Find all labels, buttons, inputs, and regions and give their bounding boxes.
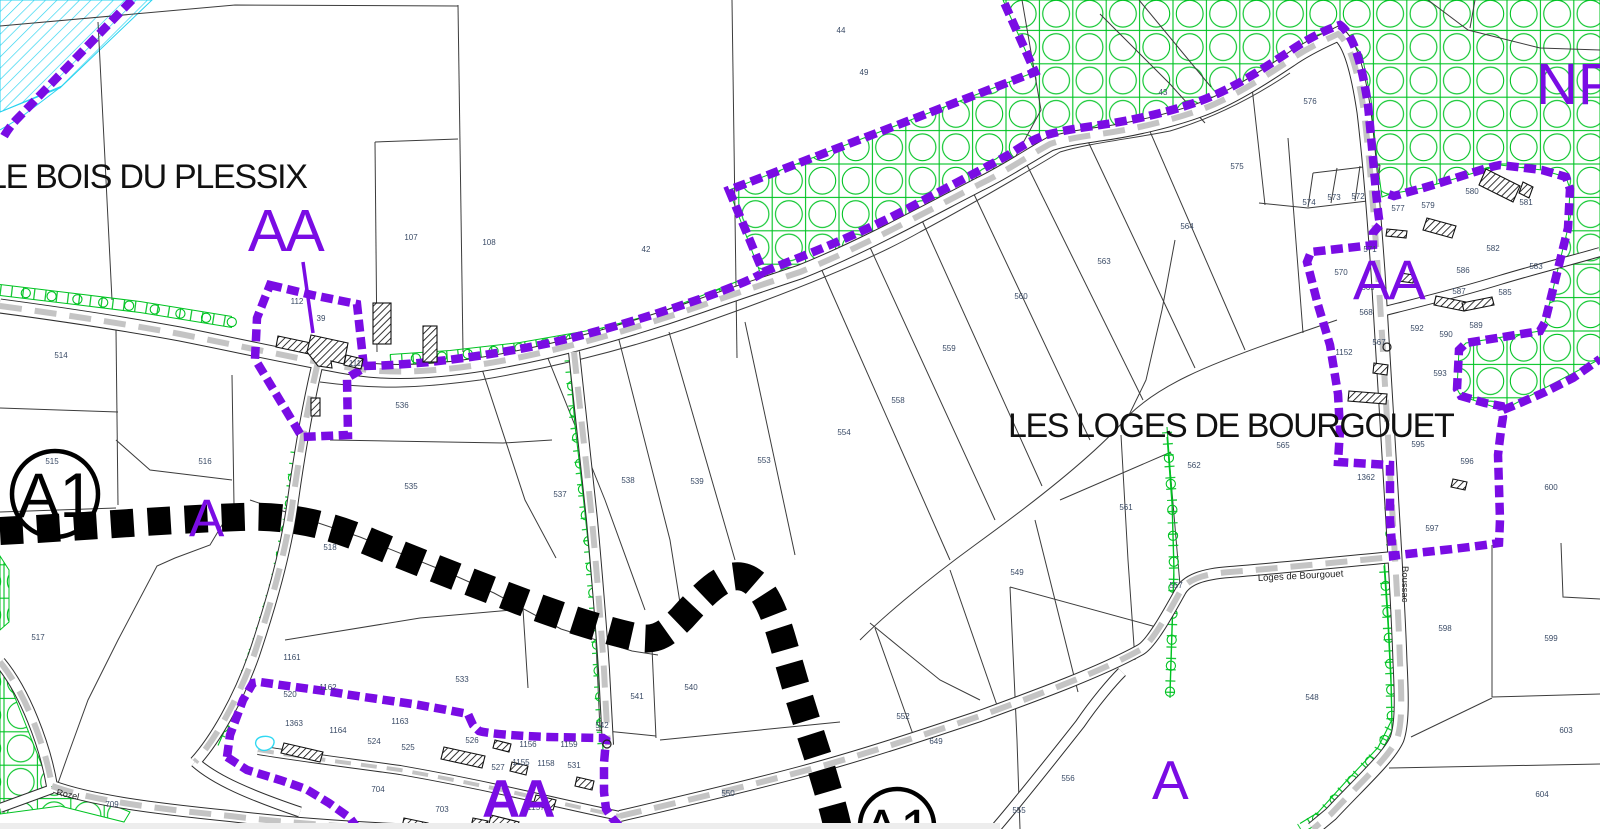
svg-text:649: 649 — [929, 737, 943, 746]
svg-text:559: 559 — [942, 344, 956, 353]
svg-text:575: 575 — [1230, 162, 1244, 171]
svg-text:A1: A1 — [17, 461, 94, 531]
svg-text:1159: 1159 — [560, 740, 578, 749]
svg-text:597: 597 — [1425, 524, 1439, 533]
svg-text:AA: AA — [1353, 248, 1426, 311]
svg-text:LE BOIS DU PLESSIX: LE BOIS DU PLESSIX — [0, 158, 307, 196]
svg-text:582: 582 — [1486, 244, 1500, 253]
svg-text:NP: NP — [1536, 52, 1600, 117]
svg-text:564: 564 — [1180, 222, 1194, 231]
svg-text:585: 585 — [1498, 288, 1512, 297]
svg-text:558: 558 — [891, 396, 905, 405]
svg-text:562: 562 — [1187, 461, 1201, 470]
svg-text:554: 554 — [837, 428, 851, 437]
svg-text:520: 520 — [283, 690, 297, 699]
svg-text:600: 600 — [1544, 483, 1558, 492]
svg-text:574: 574 — [1302, 198, 1316, 207]
svg-text:108: 108 — [482, 238, 496, 247]
svg-text:580: 580 — [1465, 187, 1479, 196]
svg-text:A: A — [1152, 749, 1189, 811]
svg-text:539: 539 — [690, 477, 704, 486]
svg-text:593: 593 — [1433, 369, 1447, 378]
svg-text:39: 39 — [317, 314, 326, 323]
svg-text:604: 604 — [1535, 790, 1549, 799]
svg-text:596: 596 — [1460, 457, 1474, 466]
svg-text:536: 536 — [395, 401, 409, 410]
svg-text:43: 43 — [1159, 88, 1168, 97]
svg-text:552: 552 — [896, 712, 910, 721]
svg-text:1163: 1163 — [391, 717, 409, 726]
svg-text:AA: AA — [482, 770, 554, 829]
svg-text:540: 540 — [684, 683, 698, 692]
svg-text:704: 704 — [371, 785, 385, 794]
svg-text:581: 581 — [1519, 198, 1533, 207]
svg-text:570: 570 — [1334, 268, 1348, 277]
svg-text:1155: 1155 — [512, 758, 530, 767]
svg-text:563: 563 — [1097, 257, 1111, 266]
svg-text:538: 538 — [621, 476, 635, 485]
svg-text:548: 548 — [1305, 693, 1319, 702]
svg-text:524: 524 — [367, 737, 381, 746]
svg-text:537: 537 — [553, 490, 567, 499]
svg-text:107: 107 — [404, 233, 418, 242]
svg-text:LES LOGES DE BOURGOUET: LES LOGES DE BOURGOUET — [1008, 407, 1454, 445]
svg-text:518: 518 — [323, 543, 337, 552]
svg-text:703: 703 — [435, 805, 449, 814]
svg-text:1152: 1152 — [1335, 348, 1353, 357]
svg-text:1156: 1156 — [519, 740, 537, 749]
svg-text:112: 112 — [291, 297, 304, 306]
svg-text:573: 573 — [1327, 193, 1341, 202]
svg-text:526: 526 — [465, 736, 479, 745]
svg-text:587: 587 — [1452, 287, 1466, 296]
svg-text:517: 517 — [31, 633, 45, 642]
svg-text:49: 49 — [860, 68, 869, 77]
svg-text:586: 586 — [1456, 266, 1470, 275]
svg-text:577: 577 — [1391, 204, 1405, 213]
svg-text:598: 598 — [1438, 624, 1452, 633]
svg-text:583: 583 — [1529, 262, 1543, 271]
svg-text:516: 516 — [198, 457, 212, 466]
svg-text:542: 542 — [595, 721, 609, 730]
svg-text:599: 599 — [1544, 634, 1558, 643]
svg-text:557: 557 — [1169, 581, 1183, 590]
svg-text:541: 541 — [630, 692, 644, 701]
svg-text:550: 550 — [721, 789, 735, 798]
svg-text:1158: 1158 — [537, 759, 555, 768]
svg-text:AA: AA — [248, 198, 325, 264]
svg-text:567: 567 — [1372, 338, 1386, 347]
svg-text:1162: 1162 — [319, 683, 337, 692]
svg-text:603: 603 — [1559, 726, 1573, 735]
svg-text:555: 555 — [1012, 806, 1026, 815]
svg-text:560: 560 — [1014, 292, 1028, 301]
svg-text:592: 592 — [1410, 324, 1424, 333]
svg-text:576: 576 — [1303, 97, 1317, 106]
svg-text:525: 525 — [401, 743, 415, 752]
svg-text:589: 589 — [1469, 321, 1483, 330]
svg-text:533: 533 — [455, 675, 469, 684]
svg-text:Boussac: Boussac — [1399, 566, 1410, 603]
svg-text:A: A — [189, 489, 225, 548]
svg-text:549: 549 — [1010, 568, 1024, 577]
svg-text:1161: 1161 — [283, 653, 301, 662]
svg-text:531: 531 — [567, 761, 581, 770]
svg-text:1363: 1363 — [285, 719, 303, 728]
svg-text:709: 709 — [105, 800, 119, 809]
svg-text:590: 590 — [1439, 330, 1453, 339]
svg-text:561: 561 — [1119, 503, 1133, 512]
svg-text:556: 556 — [1061, 774, 1075, 783]
svg-text:535: 535 — [404, 482, 418, 491]
svg-text:1362: 1362 — [1357, 473, 1375, 482]
svg-text:553: 553 — [757, 456, 771, 465]
svg-text:514: 514 — [54, 351, 68, 360]
svg-text:572: 572 — [1351, 192, 1365, 201]
svg-text:44: 44 — [837, 26, 846, 35]
svg-text:42: 42 — [642, 245, 651, 254]
svg-text:579: 579 — [1421, 201, 1435, 210]
svg-text:111: 111 — [349, 359, 362, 368]
svg-text:1164: 1164 — [329, 726, 347, 735]
